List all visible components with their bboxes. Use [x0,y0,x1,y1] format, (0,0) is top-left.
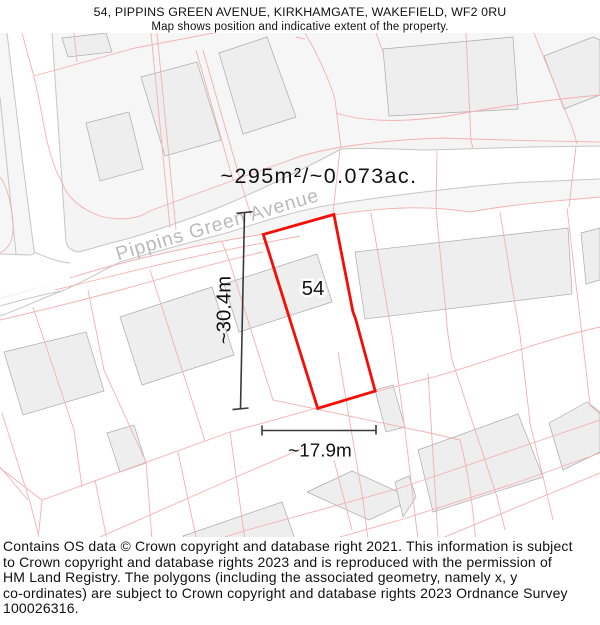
svg-text:~17.9m: ~17.9m [288,441,352,462]
svg-text:54: 54 [302,277,325,300]
svg-text:~30.4m: ~30.4m [214,276,236,344]
svg-text:~295m²/~0.073ac.: ~295m²/~0.073ac. [221,164,418,188]
